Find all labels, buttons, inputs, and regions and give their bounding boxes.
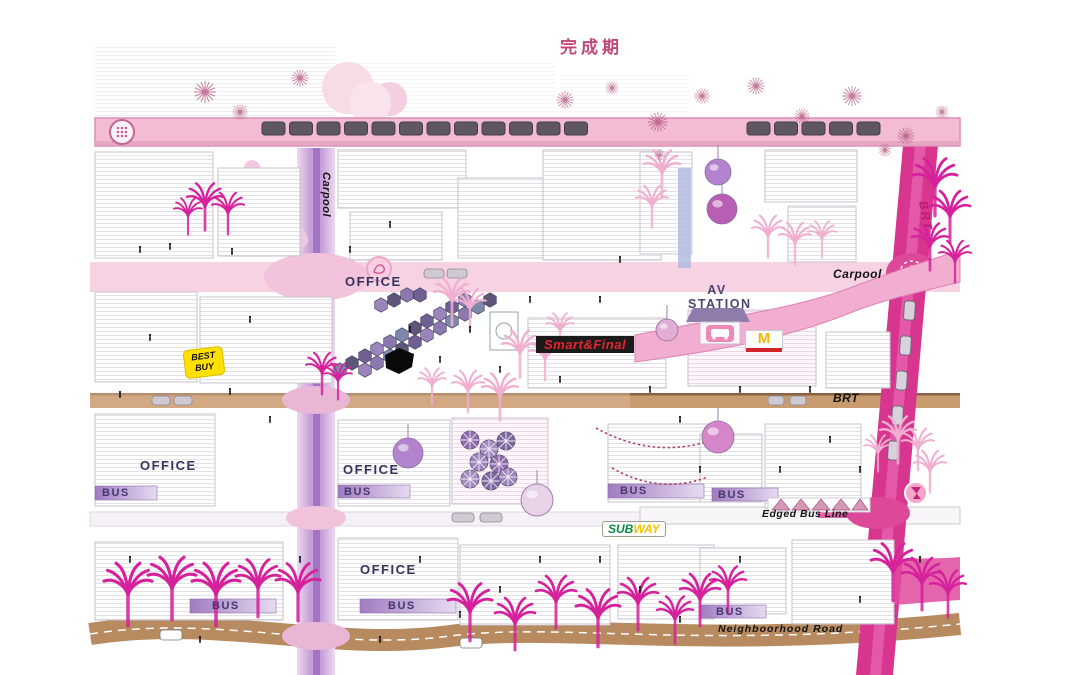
guideway-strip bbox=[678, 168, 691, 268]
page-title: 完成期 bbox=[560, 39, 623, 56]
label-bus-mid-east: BUS bbox=[620, 486, 648, 497]
label-bus-bottom-center: BUS bbox=[388, 601, 416, 612]
label-carpool-right: Carpool bbox=[833, 268, 882, 280]
label-office-mid-left: OFFICE bbox=[140, 459, 197, 472]
label-office-top: OFFICE bbox=[345, 275, 402, 288]
mcdonalds-sign: M bbox=[745, 330, 783, 349]
label-av-station: AV STATION bbox=[688, 283, 746, 312]
label-bus-bottom-left: BUS bbox=[212, 601, 240, 612]
label-office-bottom: OFFICE bbox=[360, 563, 417, 576]
label-bus-mid-center: BUS bbox=[344, 487, 372, 498]
best-buy-sign: BEST BUY bbox=[182, 346, 225, 380]
label-bus-mid-far-east: BUS bbox=[718, 490, 746, 501]
subway-sign: SUBWAY bbox=[602, 521, 666, 537]
smart-and-final-sign: Smart&Final bbox=[536, 336, 634, 353]
label-neighborhood-road: Neighboorhood Road bbox=[718, 624, 843, 635]
carpool-road bbox=[90, 262, 960, 292]
label-bus-bottom-east: BUS bbox=[716, 607, 744, 618]
train-cars bbox=[262, 122, 880, 135]
masterplan-canvas: 完成期 Carpool Carpool BRT BRT Edged Bus Li… bbox=[0, 0, 1080, 675]
label-office-mid-center: OFFICE bbox=[343, 463, 400, 476]
mcdonalds-red-stripe bbox=[746, 348, 782, 352]
label-carpool-left: Carpool bbox=[320, 172, 331, 217]
label-bus-mid-left: BUS bbox=[102, 488, 130, 499]
label-edged-bus-line: Edged Bus Line bbox=[762, 509, 848, 520]
label-brt-horizontal: BRT bbox=[833, 392, 859, 404]
